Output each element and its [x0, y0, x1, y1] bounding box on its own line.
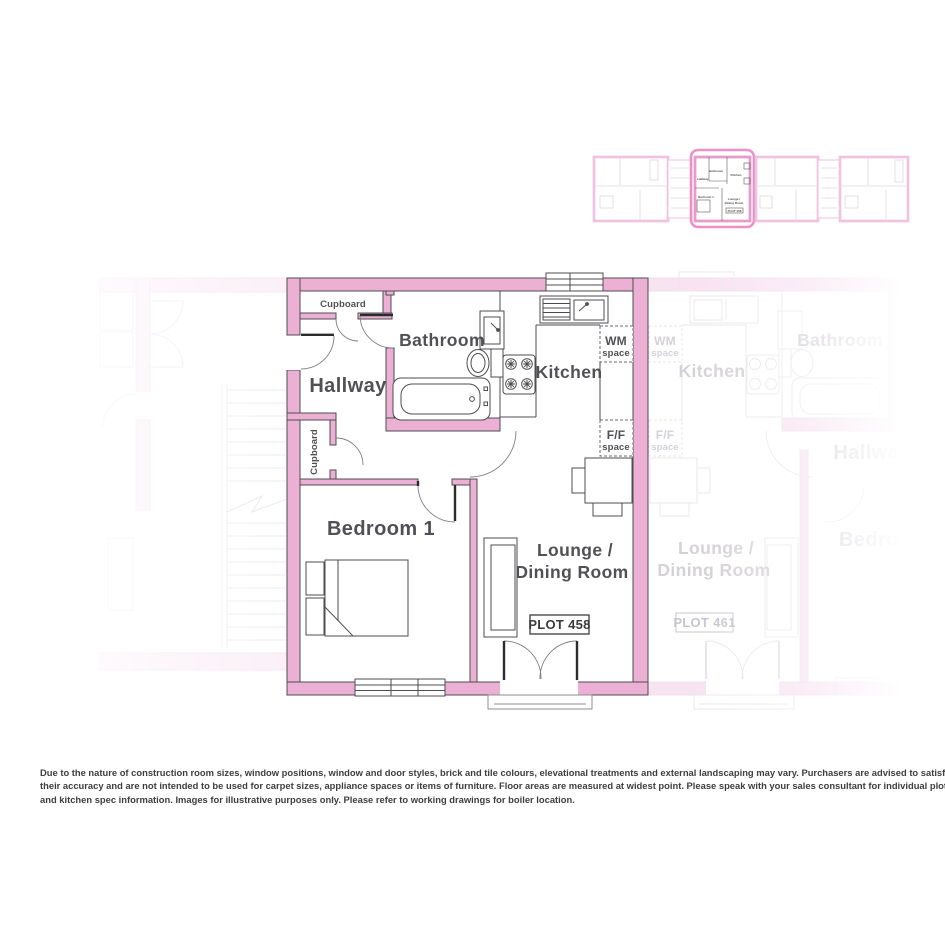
floorplan-page: Kitchen Bathroom Hallway Bedroom 1 Loung…: [0, 0, 945, 945]
room-label-hallway: Hallway: [309, 375, 387, 397]
room-label-cupboard-side: Cupboard: [309, 429, 320, 475]
disclaimer-line-2: their accuracy and are not intended to b…: [40, 779, 910, 792]
thumb-label-plot: PLOT 458: [728, 209, 742, 213]
ff-space-label-line1: F/F: [607, 428, 626, 442]
adjacent-ff-space-label-line2: space: [651, 442, 678, 453]
left-fade-overlay: [60, 255, 287, 725]
disclaimer-line-1: Due to the nature of construction room s…: [40, 766, 910, 779]
plot-thumbnail-4[interactable]: [840, 157, 908, 221]
stair-core-thumbnail-2: [818, 160, 840, 218]
thumb-label-kitchen: Kitchen: [730, 173, 741, 177]
plot-badge: PLOT 458: [528, 615, 590, 634]
stair-core-thumbnail-1: [668, 160, 692, 218]
adjacent-wm-space-label-line1: WM: [654, 334, 676, 348]
adjacent-wm-space-label-line2: space: [651, 348, 678, 359]
right-fade-overlay: [700, 255, 945, 725]
sofa-icon: [484, 538, 517, 637]
room-label-lounge-line2: Dining Room: [515, 562, 628, 582]
toilet-icon: [467, 349, 503, 377]
thumb-label-lounge-line2: Dining Room: [725, 201, 744, 205]
plot-thumbnail-3[interactable]: [756, 157, 818, 221]
thumb-label-bathroom: Bathroom: [709, 169, 723, 173]
plot-badge-text: PLOT 458: [528, 617, 590, 632]
thumb-label-bedroom: Bedroom 1: [698, 195, 714, 199]
bath-icon: [393, 378, 490, 420]
disclaimer-line-3: and kitchen spec information. Images for…: [40, 793, 910, 806]
room-label-lounge-line1: Lounge /: [537, 540, 613, 560]
sink-icon: [540, 296, 608, 323]
disclaimer-text: Due to the nature of construction room s…: [40, 766, 910, 806]
main-floor-plan: Cupboard Bathroom Hallway Kitchen Cupboa…: [286, 273, 648, 709]
thumb-label-hallway: Hallway: [697, 177, 709, 181]
plot-thumbnail-1[interactable]: [594, 157, 668, 221]
room-label-cupboard-top: Cupboard: [320, 299, 366, 310]
room-label-kitchen: Kitchen: [536, 362, 603, 382]
dining-table-icon: [572, 458, 632, 516]
bed-icon: [306, 560, 408, 636]
patio-step: [488, 695, 592, 709]
plot-thumbnail-strip: Bathroom Hallway Kitchen Bedroom 1 Loung…: [594, 150, 908, 227]
wm-space-label-line1: WM: [605, 334, 627, 348]
wm-space-label-line2: space: [602, 348, 629, 359]
plot-thumbnail-current[interactable]: Bathroom Hallway Kitchen Bedroom 1 Loung…: [691, 150, 754, 227]
ff-space-label-line2: space: [602, 442, 629, 453]
hob-icon: [503, 355, 535, 394]
room-label-bathroom: Bathroom: [399, 330, 485, 350]
room-label-bedroom: Bedroom 1: [327, 518, 435, 540]
adjacent-ff-space-label-line1: F/F: [656, 428, 675, 442]
